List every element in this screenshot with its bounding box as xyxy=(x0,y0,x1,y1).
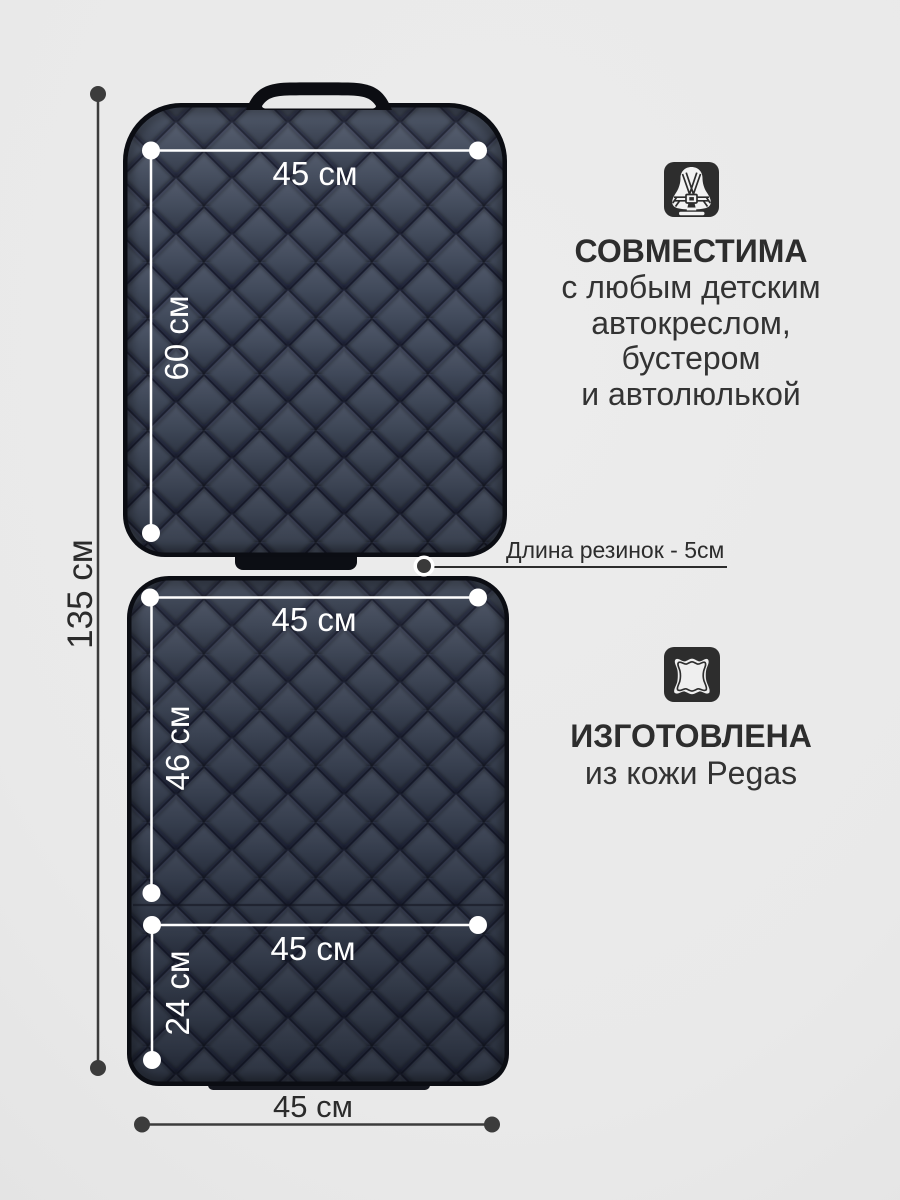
svg-text:бустером: бустером xyxy=(622,340,761,376)
svg-text:из кожи Pegas: из кожи Pegas xyxy=(585,755,797,791)
svg-text:45 см: 45 см xyxy=(270,930,355,967)
svg-text:с любым детским: с любым детским xyxy=(561,269,820,305)
svg-text:и автолюлькой: и автолюлькой xyxy=(581,376,801,412)
svg-text:45 см: 45 см xyxy=(272,155,357,192)
svg-text:ИЗГОТОВЛЕНА: ИЗГОТОВЛЕНА xyxy=(570,718,812,754)
svg-text:45 см: 45 см xyxy=(271,601,356,638)
svg-text:Длина резинок - 5см: Длина резинок - 5см xyxy=(506,537,724,563)
svg-text:45 см: 45 см xyxy=(273,1089,353,1124)
svg-text:46 см: 46 см xyxy=(159,705,196,790)
svg-text:24 см: 24 см xyxy=(159,950,196,1035)
svg-text:автокреслом,: автокреслом, xyxy=(591,305,791,341)
svg-text:60 см: 60 см xyxy=(158,295,195,380)
svg-text:СОВМЕСТИМА: СОВМЕСТИМА xyxy=(575,233,808,269)
svg-text:135 см: 135 см xyxy=(61,539,100,649)
